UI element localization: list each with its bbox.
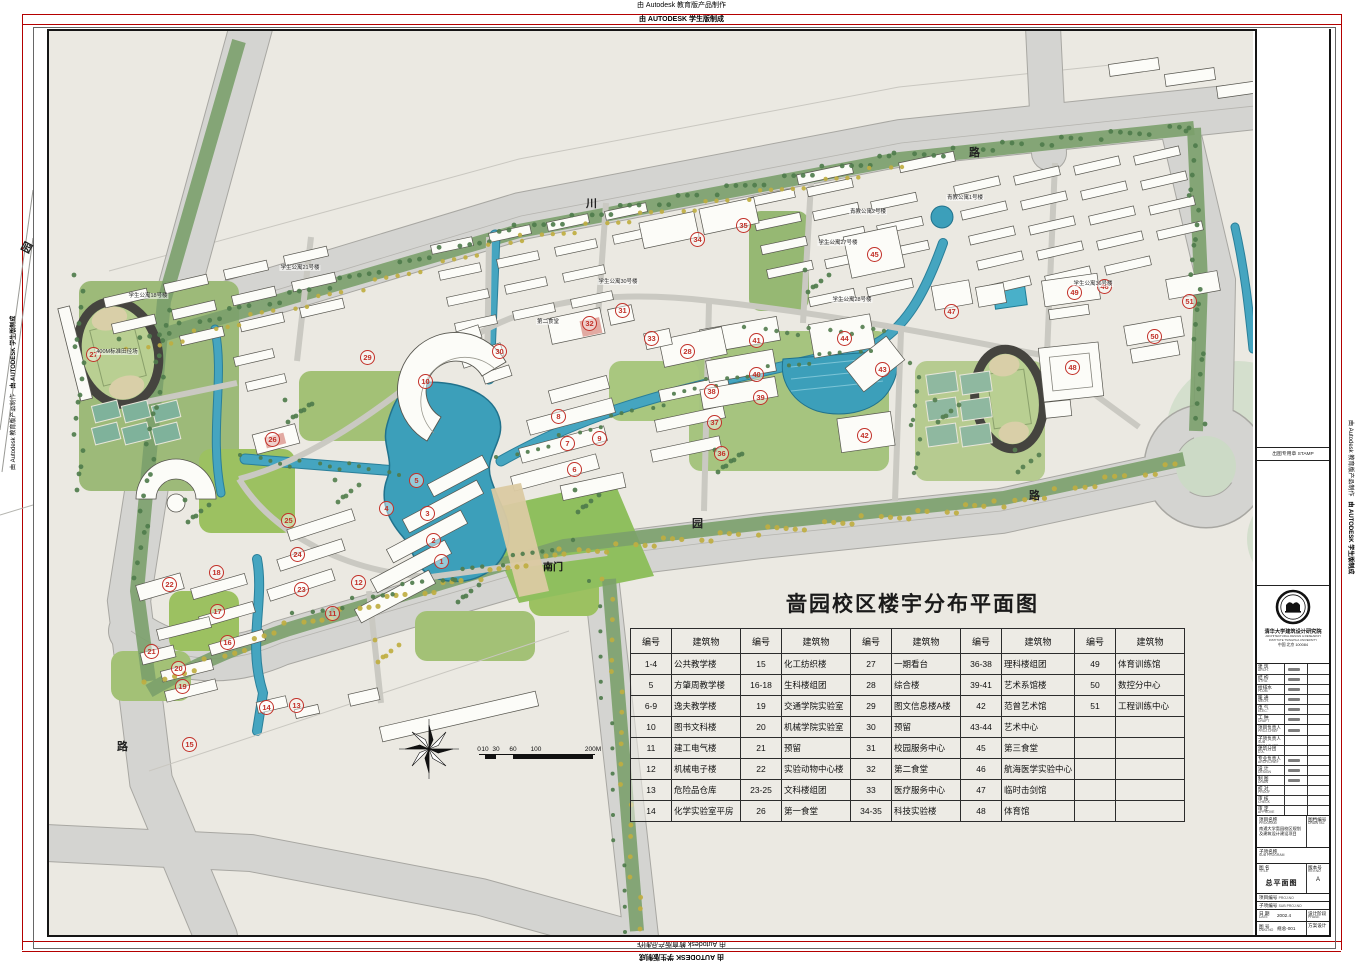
legend-id-cell: 28 [851, 675, 892, 696]
project-no-row: 项目编号 PROJ.NO [1257, 893, 1329, 901]
drawing-title: 总平面图 [1259, 878, 1304, 888]
title-block-row: 结 构STRU. [1257, 674, 1329, 684]
legend-id-cell: 14 [631, 801, 672, 822]
title-block-row: 子项负责人SUB PROJ.CHIEF [1257, 735, 1329, 745]
legend-row: 6-9逸夫教学楼19交通学院实验室29图文信息楼A楼42范曾艺术馆51工程训练中… [631, 696, 1185, 717]
legend-name-cell: 预留 [892, 717, 961, 738]
watermark-top: 由 Autodesk 教育版产品制作 [0, 1, 1363, 10]
legend-header-name: 建筑物 [1002, 629, 1075, 654]
legend-header-name: 建筑物 [1116, 629, 1185, 654]
scale-tick: 30 [492, 746, 499, 753]
institute-subtitle: ARCHITECTURAL DESIGN & RESEARCH INSTITUT… [1261, 635, 1326, 642]
legend-name-cell: 工程训练中心 [1116, 696, 1185, 717]
legend-name-cell: 体育训练馆 [1116, 654, 1185, 675]
date-value: 2002.4 [1277, 913, 1291, 918]
watermark-rule [22, 951, 1341, 952]
legend-name-cell: 化工纺织楼 [782, 654, 851, 675]
legend-id-cell [1075, 780, 1116, 801]
plan-title: 啬园校区楼宇分布平面图 [786, 588, 1039, 618]
legend-name-cell: 交通学院实验室 [782, 696, 851, 717]
legend-id-cell: 48 [961, 801, 1002, 822]
legend-name-cell: 医疗服务中心 [892, 780, 961, 801]
legend-id-cell: 46 [961, 759, 1002, 780]
legend-id-cell: 21 [741, 738, 782, 759]
phase-value: 方案设计 [1308, 923, 1326, 928]
title-block-row: 暖 通MECH. [1257, 694, 1329, 704]
legend-name-cell: 生科楼组团 [782, 675, 851, 696]
legend-name-cell [1116, 759, 1185, 780]
legend-name-cell: 第三食堂 [1002, 738, 1075, 759]
legend-name-cell: 化学实验室平房 [672, 801, 741, 822]
title-block-row: 给排水PLUM. [1257, 684, 1329, 694]
title-block-row: 审 定APPROVE [1257, 805, 1329, 815]
legend-id-cell: 47 [961, 780, 1002, 801]
watermark-line1: 由 Autodesk 教育版产品制作 [0, 1, 1363, 10]
title-block-blank [1257, 29, 1329, 447]
legend-id-cell: 1-4 [631, 654, 672, 675]
legend-name-cell: 方肇周教学楼 [672, 675, 741, 696]
stamp-label: 出图专用章 STAMP [1257, 447, 1329, 460]
legend-id-cell: 32 [851, 759, 892, 780]
legend-name-cell [1116, 717, 1185, 738]
watermark-right: 由 Autodesk 教育版产品制作 由 AUTODESK 学生版制成 [1347, 420, 1356, 574]
legend-row: 10图书文科楼20机械学院实验室30预留43-44艺术中心 [631, 717, 1185, 738]
program-row: 项目名称 PROGRAM 南通大学啬园校区规划及建筑设计建设项目 图档编号 DR… [1257, 815, 1329, 847]
legend-id-cell: 34-35 [851, 801, 892, 822]
legend-name-cell: 逸夫教学楼 [672, 696, 741, 717]
legend-id-cell: 10 [631, 717, 672, 738]
drawing-sheet: 由 Autodesk 教育版产品制作 由 AUTODESK 学生版制成 由 Au… [0, 0, 1363, 964]
scale-tick: 60 [509, 746, 516, 753]
legend-name-cell: 建工电气楼 [672, 738, 741, 759]
date-row: 日 期DATE 2002.4 设计阶段 PHASE [1257, 909, 1329, 921]
title-block: 出图专用章 STAMP 清华大学建筑设计研究院 ARCHITECTURAL DE… [1255, 29, 1329, 935]
institute-block: 清华大学建筑设计研究院 ARCHITECTURAL DESIGN & RESEA… [1257, 585, 1329, 663]
legend-name-cell: 综合楼 [892, 675, 961, 696]
title-block-row: 审 核CHECK [1257, 795, 1329, 805]
legend-name-cell: 艺术系馆楼 [1002, 675, 1075, 696]
legend-row: 13危险品仓库23-25文科楼组团33医疗服务中心47临时击剑馆 [631, 780, 1185, 801]
legend-row: 11建工电气楼21预留31校园服务中心45第三食堂 [631, 738, 1185, 759]
program-name: 南通大学啬园校区规划及建筑设计建设项目 [1259, 826, 1304, 836]
title-block-row: 工 种DRAFT [1257, 714, 1329, 724]
title-block-row: 校 对PROOF [1257, 785, 1329, 795]
legend-id-cell: 29 [851, 696, 892, 717]
sub-program-row: 子项名称 SUB PROGRAM [1257, 847, 1329, 863]
legend-header-name: 建筑物 [892, 629, 961, 654]
legend-name-cell [1116, 738, 1185, 759]
title-block-row: 设 计DESIGN [1257, 765, 1329, 775]
title-block-row: 制 图DRAW [1257, 775, 1329, 785]
legend-id-cell: 31 [851, 738, 892, 759]
legend-id-cell: 39-41 [961, 675, 1002, 696]
legend-id-cell: 6-9 [631, 696, 672, 717]
legend-id-cell: 51 [1075, 696, 1116, 717]
legend-id-cell: 23-25 [741, 780, 782, 801]
revision: A [1308, 877, 1328, 883]
legend-name-cell: 图文信息楼A楼 [892, 696, 961, 717]
legend-name-cell: 校园服务中心 [892, 738, 961, 759]
legend-id-cell: 27 [851, 654, 892, 675]
legend-id-cell: 16-18 [741, 675, 782, 696]
drawing-no-row: 图 号DWG.NO 规总-001 方案设计 [1257, 921, 1329, 935]
legend-id-cell: 33 [851, 780, 892, 801]
legend-header-id: 编号 [741, 629, 782, 654]
legend-id-cell: 26 [741, 801, 782, 822]
institute-address: 中国 北京 100084 [1257, 643, 1329, 648]
legend-header-id: 编号 [1075, 629, 1116, 654]
legend-id-cell: 19 [741, 696, 782, 717]
legend-header-name: 建筑物 [672, 629, 741, 654]
north-arrow-icon [398, 718, 460, 780]
legend-id-cell: 12 [631, 759, 672, 780]
legend-id-cell [1075, 759, 1116, 780]
legend-name-cell: 体育馆 [1002, 801, 1075, 822]
legend-id-cell [1075, 801, 1116, 822]
legend-name-cell [1116, 801, 1185, 822]
scale-tick: 200M [585, 746, 601, 753]
legend-id-cell: 45 [961, 738, 1002, 759]
legend-name-cell: 第一食堂 [782, 801, 851, 822]
title-block-row: 电 气ELEC. [1257, 704, 1329, 714]
legend-name-cell: 第二食堂 [892, 759, 961, 780]
legend-id-cell: 22 [741, 759, 782, 780]
legend-row: 5方肇周教学楼16-18生科楼组团28综合楼39-41艺术系馆楼50数控分中心 [631, 675, 1185, 696]
scale-tick: 10 [481, 746, 488, 753]
disciplines-table: 建 筑ARCH.结 构STRU.给排水PLUM.暖 通MECH.电 气ELEC.… [1257, 663, 1329, 724]
sub-project-no-row: 子项编号 SUB PROJ.NO [1257, 901, 1329, 909]
legend-name-cell: 科技实验楼 [892, 801, 961, 822]
drawing-no-value: 规总-001 [1277, 926, 1295, 931]
legend-name-cell: 危险品仓库 [672, 780, 741, 801]
roles-table: 项目负责人PROJ.CHIEF子项负责人SUB PROJ.CHIEF建筑分团D.… [1257, 724, 1329, 815]
legend-name-cell: 机械学院实验室 [782, 717, 851, 738]
legend-row: 12机械电子楼22实验动物中心楼32第二食堂46航海医学实验中心 [631, 759, 1185, 780]
legend-header-name: 建筑物 [782, 629, 851, 654]
watermark-bottom-bold: 由 AUTODESK 学生版制成 [0, 952, 1363, 961]
legend-name-cell [1116, 780, 1185, 801]
legend-id-cell: 20 [741, 717, 782, 738]
legend-id-cell: 36-38 [961, 654, 1002, 675]
legend-name-cell: 航海医学实验中心 [1002, 759, 1075, 780]
watermark-rule [22, 24, 1341, 25]
legend-id-cell: 11 [631, 738, 672, 759]
title-block-row: 建筑分团D.A. [1257, 745, 1329, 755]
legend-name-cell: 图书文科楼 [672, 717, 741, 738]
legend-name-cell: 实验动物中心楼 [782, 759, 851, 780]
legend-header-id: 编号 [631, 629, 672, 654]
scale-bar: 0103060100200M [479, 746, 595, 760]
legend-id-cell: 42 [961, 696, 1002, 717]
legend-name-cell: 理科楼组团 [1002, 654, 1075, 675]
legend-id-cell [1075, 738, 1116, 759]
legend-name-cell: 预留 [782, 738, 851, 759]
legend-id-cell: 43-44 [961, 717, 1002, 738]
legend-name-cell: 临时击剑馆 [1002, 780, 1075, 801]
legend-name-cell: 艺术中心 [1002, 717, 1075, 738]
legend-name-cell: 文科楼组团 [782, 780, 851, 801]
legend-name-cell: 公共教学楼 [672, 654, 741, 675]
title-block-row: 项目负责人PROJ.CHIEF [1257, 725, 1329, 735]
scale-tick: 100 [531, 746, 542, 753]
watermark-top-bold: 由 AUTODESK 学生版制成 [0, 15, 1363, 24]
institute-seal-icon [1275, 589, 1311, 625]
legend-id-cell: 5 [631, 675, 672, 696]
legend-id-cell: 30 [851, 717, 892, 738]
drawing-title-row: 图 名 TITLE 总平面图 版本号 REV.NO A [1257, 863, 1329, 893]
legend-header-id: 编号 [961, 629, 1002, 654]
legend-row: 1-4公共教学楼15化工纺织楼27一期看台36-38理科楼组团49体育训练馆 [631, 654, 1185, 675]
legend-name-cell: 数控分中心 [1116, 675, 1185, 696]
scale-tick: 0 [477, 746, 481, 753]
legend-name-cell: 机械电子楼 [672, 759, 741, 780]
legend-id-cell: 49 [1075, 654, 1116, 675]
title-block-row: 建 筑ARCH. [1257, 664, 1329, 674]
legend-table: 编号建筑物编号建筑物编号建筑物编号建筑物编号建筑物1-4公共教学楼15化工纺织楼… [630, 628, 1185, 822]
legend-id-cell: 13 [631, 780, 672, 801]
legend-id-cell: 15 [741, 654, 782, 675]
watermark-line2: 由 AUTODESK 学生版制成 [0, 15, 1363, 24]
legend-id-cell [1075, 717, 1116, 738]
legend-id-cell: 50 [1075, 675, 1116, 696]
legend-name-cell: 范曾艺术馆 [1002, 696, 1075, 717]
legend-name-cell: 一期看台 [892, 654, 961, 675]
watermark-rule [1341, 14, 1342, 950]
watermark-line2: 由 AUTODESK 学生版制成 [0, 952, 1363, 961]
legend-row: 14化学实验室平房26第一食堂34-35科技实验楼48体育馆 [631, 801, 1185, 822]
title-block-row: 专业负责人ARCH.CHIEF [1257, 755, 1329, 765]
legend-header-id: 编号 [851, 629, 892, 654]
stamp-box [1257, 460, 1329, 585]
